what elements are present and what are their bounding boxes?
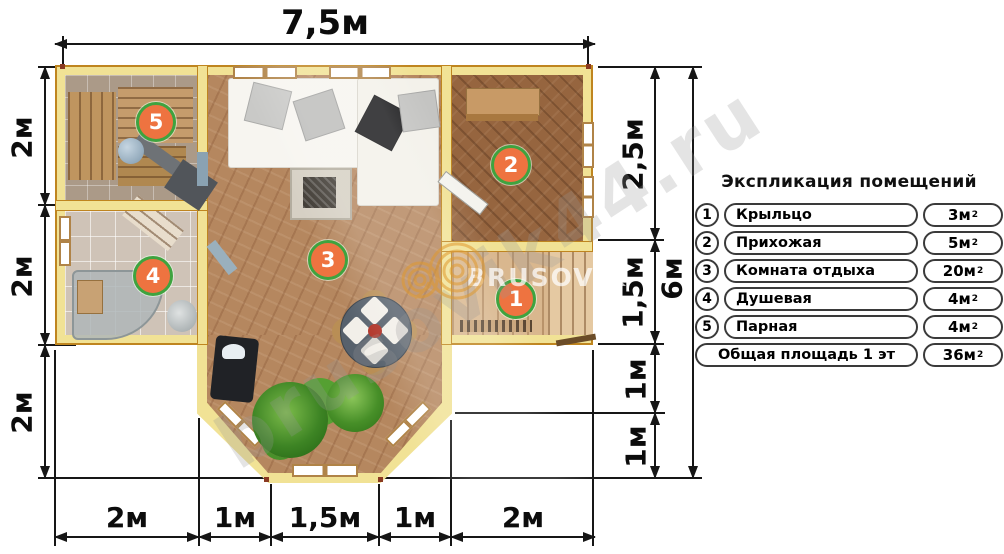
- lounge-window-top-left: [233, 66, 297, 79]
- legend-room-area: 5м2: [923, 231, 1003, 255]
- hallway-bench: [466, 88, 540, 116]
- room-marker-5: 5: [136, 102, 176, 142]
- tv-screen: [222, 344, 245, 359]
- dim-line-right-3: [654, 343, 656, 413]
- legend-room-name: Комната отдыха: [724, 259, 918, 283]
- dim-label-bottom-5: 2м: [473, 501, 573, 534]
- legend-title: Экспликация помещений: [695, 172, 1003, 192]
- extension-line: [38, 477, 266, 479]
- legend-room-area: 4м2: [923, 315, 1003, 339]
- shower-window-left: [59, 216, 71, 266]
- legend-room-name: Крыльцо: [724, 203, 918, 227]
- extension-line: [198, 418, 200, 546]
- legend-room-area: 4м2: [923, 287, 1003, 311]
- dim-label-right-2: 1,5м: [617, 248, 650, 338]
- corner-dot: [60, 64, 65, 69]
- dim-label-bottom-3: 1,5м: [275, 501, 375, 534]
- dim-label-left-2: 2м: [6, 237, 39, 317]
- lounge-window-top-right: [329, 66, 391, 79]
- extension-line: [592, 350, 594, 546]
- room-marker-2: 2: [491, 145, 531, 185]
- extension-line: [598, 343, 664, 345]
- extension-line: [54, 350, 56, 546]
- legend-room-name: Парная: [724, 315, 918, 339]
- legend-row: 1 Крыльцо 3м2: [695, 203, 1003, 227]
- room-marker-3: 3: [308, 240, 348, 280]
- dim-line-bottom-1: [55, 536, 199, 538]
- extension-line: [378, 484, 380, 546]
- room-marker-1: 1: [496, 279, 536, 319]
- legend-total-label: Общая площадь 1 эт: [695, 343, 918, 367]
- sauna-water-tank: [118, 138, 144, 164]
- plant: [252, 382, 328, 458]
- legend-row-number: 2: [695, 231, 719, 255]
- bay-window-bottom: [292, 464, 358, 477]
- legend-room-area: 3м2: [923, 203, 1003, 227]
- shower-basin: [167, 300, 197, 332]
- sauna-glass-door: [197, 152, 208, 186]
- dim-line-left-3: [44, 345, 46, 478]
- sofa-pillow: [398, 90, 441, 133]
- legend-row-number: 1: [695, 203, 719, 227]
- porch-doormat: [460, 320, 532, 332]
- dim-line-bottom-5: [451, 536, 595, 538]
- legend-room-area: 20м2: [923, 259, 1003, 283]
- extension-line: [455, 412, 665, 414]
- legend-panel: Экспликация помещений 1 Крыльцо 3м2 2 Пр…: [695, 172, 1003, 371]
- dim-line-bottom-4: [379, 536, 451, 538]
- dim-label-right-1: 2,5м: [617, 110, 650, 200]
- legend-room-name: Душевая: [724, 287, 918, 311]
- legend-row-number: 4: [695, 287, 719, 311]
- extension-line: [598, 66, 702, 68]
- dim-label-bottom-1: 2м: [77, 501, 177, 534]
- room-marker-4: 4: [133, 256, 173, 296]
- dining-centerpiece: [368, 324, 382, 338]
- porch-steps: [548, 252, 593, 335]
- hallway-bench-shadow: [466, 114, 538, 121]
- legend-room-name: Прихожая: [724, 231, 918, 255]
- legend-row: 3 Комната отдыха 20м2: [695, 259, 1003, 283]
- legend-row: 4 Душевая 4м2: [695, 287, 1003, 311]
- extension-line: [382, 477, 702, 479]
- dim-line-bottom-2: [199, 536, 271, 538]
- dim-line-left-1: [44, 67, 46, 205]
- corner-dot: [264, 477, 269, 482]
- dim-line-right-4: [654, 413, 656, 478]
- dim-line-top: [55, 43, 595, 45]
- legend-row: 5 Парная 4м2: [695, 315, 1003, 339]
- dim-label-right-total: 6м: [656, 249, 689, 309]
- watermark-logo-icon: [395, 238, 487, 310]
- dim-line-left-2: [44, 205, 46, 345]
- dim-line-right-1: [654, 67, 656, 240]
- extension-line: [598, 239, 664, 241]
- corner-dot: [586, 64, 591, 69]
- legend-row: 2 Прихожая 5м2: [695, 231, 1003, 255]
- coffee-table-top: [303, 177, 336, 208]
- shower-cabinet: [77, 280, 103, 314]
- dim-label-left-1: 2м: [6, 98, 39, 178]
- sauna-bench-left: [68, 92, 116, 180]
- extension-line: [587, 36, 589, 66]
- legend-total-row: Общая площадь 1 эт 36м2: [695, 343, 1003, 367]
- hallway-window-right-2: [582, 176, 594, 218]
- dim-line-bottom-3: [271, 536, 379, 538]
- hallway-window-right-1: [582, 122, 594, 168]
- legend-row-number: 5: [695, 315, 719, 339]
- dim-line-right-total: [692, 67, 694, 478]
- corner-dot: [378, 477, 383, 482]
- extension-line: [450, 420, 452, 546]
- dim-label-top: 7,5м: [265, 3, 385, 43]
- plant-small: [326, 374, 384, 432]
- extension-line: [62, 36, 64, 66]
- legend-row-number: 3: [695, 259, 719, 283]
- extension-line: [270, 484, 272, 546]
- dim-label-left-3: 2м: [6, 373, 39, 453]
- legend-total-area: 36м2: [923, 343, 1003, 367]
